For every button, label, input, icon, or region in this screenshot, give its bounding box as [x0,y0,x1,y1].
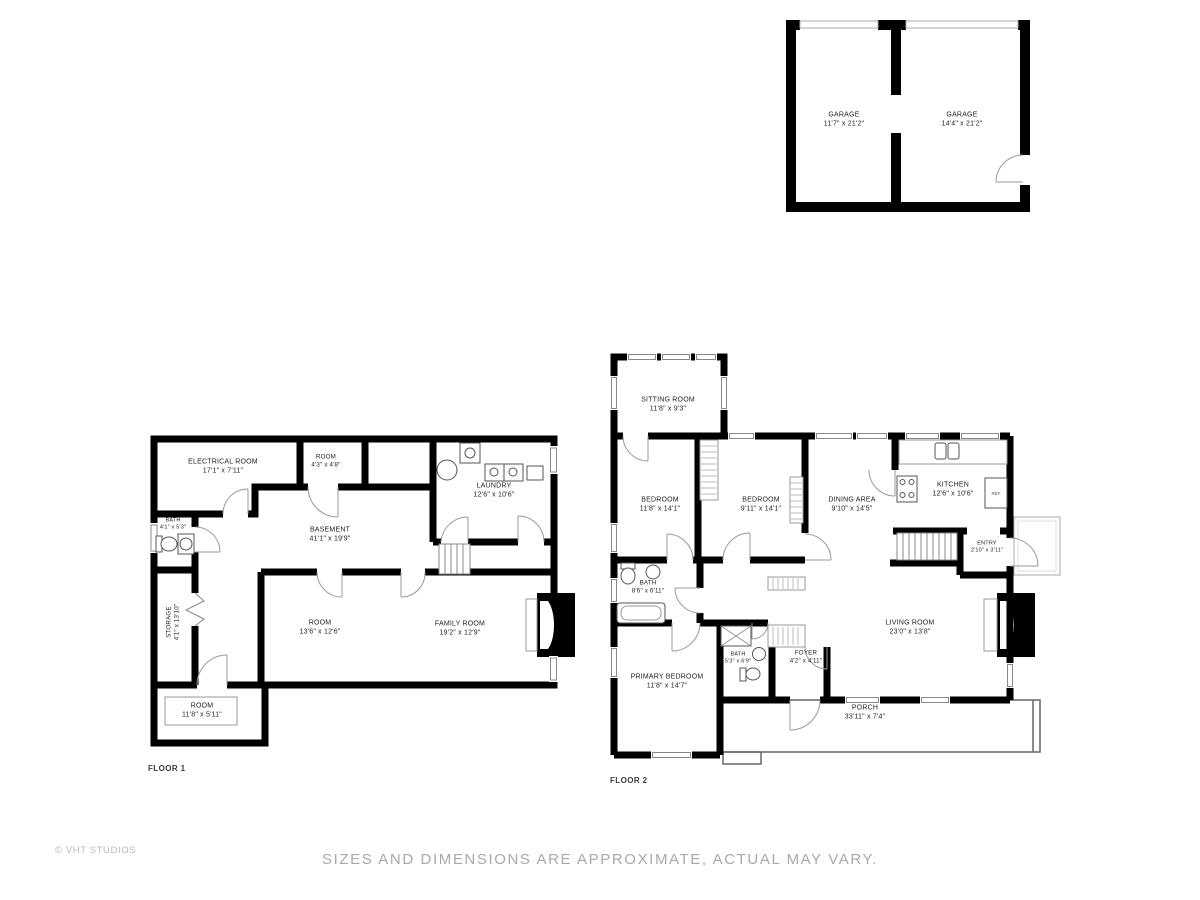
room-name: STORAGE [166,604,174,641]
room-name: ENTRY [971,541,1003,548]
room-label-dining-area: DINING AREA 9'10" x 14'5" [828,496,875,515]
room-dims: 19'2" x 12'9" [435,629,485,638]
room-dims: 12'6" x 10'6" [933,490,974,499]
room-dims: 12'6" x 10'6" [474,491,515,500]
room-label-kitchen: KITCHEN 12'6" x 10'6" [933,481,974,500]
room-dims: 4'3" x 4'8" [311,462,340,470]
room-name: LAUNDRY [474,482,515,491]
sink-bowl [753,648,766,661]
toilet-bowl [746,668,760,680]
refrigerator-label: REF [992,491,1001,496]
room-name: BEDROOM [741,496,781,505]
room-label-basement: BASEMENT 41'1" x 19'9" [310,526,351,545]
room-label-primary-bedroom: PRIMARY BEDROOM 11'8" x 14'7" [631,673,704,692]
room-name: ROOM [182,702,222,711]
room-label-bath-main: BATH 8'6" x 6'11" [632,580,664,597]
room-name: ELECTRICAL ROOM [188,458,258,467]
room-dims: 11'8" x 5'11" [182,711,222,720]
room-dims: 8'6" x 6'11" [632,588,664,596]
room-dims: 23'0" x 13'8" [886,628,935,637]
room-dims: 9'11" x 14'1" [741,505,781,514]
room-dims: 33'11" x 7'4" [845,713,885,722]
toilet-bowl [161,537,177,551]
room-label-living-room: LIVING ROOM 23'0" x 13'8" [886,619,935,638]
room-name: BATH [632,580,664,588]
room-dims: 4'1" x 13'10" [174,604,182,641]
stairs [897,533,957,560]
sink-bowl [180,538,192,550]
room-dims: 41'1" x 19'9" [310,535,351,544]
floor1-plan: ELECTRICAL ROOM 17'1" x 7'11" ROOM 4'3" … [148,430,580,752]
garage-plan-drawing [784,18,1032,214]
room-name: BEDROOM [640,496,680,505]
room-label-room-bottom: ROOM 11'8" x 5'11" [182,702,222,721]
utility-sink [437,460,457,480]
room-name: PORCH [845,704,885,713]
room-dims: 11'8" x 14'1" [640,505,680,514]
room-name: KITCHEN [933,481,974,490]
floor1-tag: FLOOR 1 [148,764,185,773]
room-label-garage-2: GARAGE 14'4" x 21'2" [942,111,983,130]
room-name: FOYER [790,650,822,658]
room-dims: 11'8" x 14'7" [631,682,704,691]
room-dims: 5'3" x 6'9" [725,659,751,666]
room-name: BATH [160,518,186,525]
room-label-garage-1: GARAGE 11'7" x 21'2" [824,111,864,130]
room-dims: 4'1" x 5'3" [160,525,186,532]
room-dims: 11'7" x 21'2" [824,120,864,129]
room-label-porch: PORCH 33'11" x 7'4" [845,704,885,723]
room-dims: 14'4" x 21'2" [942,120,983,129]
room-label-storage: STORAGE 4'1" x 13'10" [166,604,183,641]
garage-door-openings [800,19,1018,30]
room-dims: 17'1" x 7'11" [188,467,258,476]
size-disclaimer: SIZES AND DIMENSIONS ARE APPROXIMATE, AC… [0,851,1200,868]
room-label-electrical-room: ELECTRICAL ROOM 17'1" x 7'11" [188,458,258,477]
room-name: LIVING ROOM [886,619,935,628]
room-label-bath-floor1: BATH 4'1" x 5'3" [160,518,186,533]
sink [935,443,946,459]
room-label-bath-small: BATH 5'3" x 6'9" [725,652,751,667]
room-name: DINING AREA [828,496,875,505]
room-label-room-small: ROOM 4'3" x 4'8" [311,454,340,471]
room-dims: 11'8" x 9'3" [641,405,695,414]
room-label-entry: ENTRY 2'10" x 3'11" [971,541,1003,556]
room-name: FAMILY ROOM [435,620,485,629]
room-label-family-room: FAMILY ROOM 19'2" x 12'9" [435,620,485,639]
room-dims: 9'10" x 14'5" [828,505,875,514]
room-label-bedroom-1: BEDROOM 11'8" x 14'1" [640,496,680,515]
fireplace [526,593,575,657]
room-dims: 4'2" x 4'11" [790,658,822,666]
room-dims: 2'10" x 3'11" [971,548,1003,555]
room-name: PRIMARY BEDROOM [631,673,704,682]
room-name: GARAGE [824,111,864,120]
stove [897,476,917,502]
room-label-laundry: LAUNDRY 12'6" x 10'6" [474,482,515,501]
floor2-tag: FLOOR 2 [610,776,647,785]
toilet-tank [740,668,746,681]
room-name: ROOM [311,454,340,462]
room-label-sitting-room: SITTING ROOM 11'8" x 9'3" [641,396,695,415]
floor-plan-sheet: GARAGE 11'7" x 21'2" GARAGE 14'4" x 21'2… [0,0,1200,900]
garage-plan: GARAGE 11'7" x 21'2" GARAGE 14'4" x 21'2… [784,18,1032,214]
floor2-plan: REF SITTING ROOM 11'8" x 9'3" [605,348,1065,773]
room-name: GARAGE [942,111,983,120]
room-label-bedroom-2: BEDROOM 9'11" x 14'1" [741,496,781,515]
stairs [439,544,470,574]
sink-bowl [646,565,660,579]
room-label-room-13x12: ROOM 13'6" x 12'6" [300,619,341,638]
room-label-foyer: FOYER 4'2" x 4'11" [790,650,822,667]
room-name: ROOM [300,619,341,628]
room-name: BASEMENT [310,526,351,535]
room-dims: 13'6" x 12'6" [300,628,341,637]
room-name: SITTING ROOM [641,396,695,405]
room-name: BATH [725,652,751,659]
